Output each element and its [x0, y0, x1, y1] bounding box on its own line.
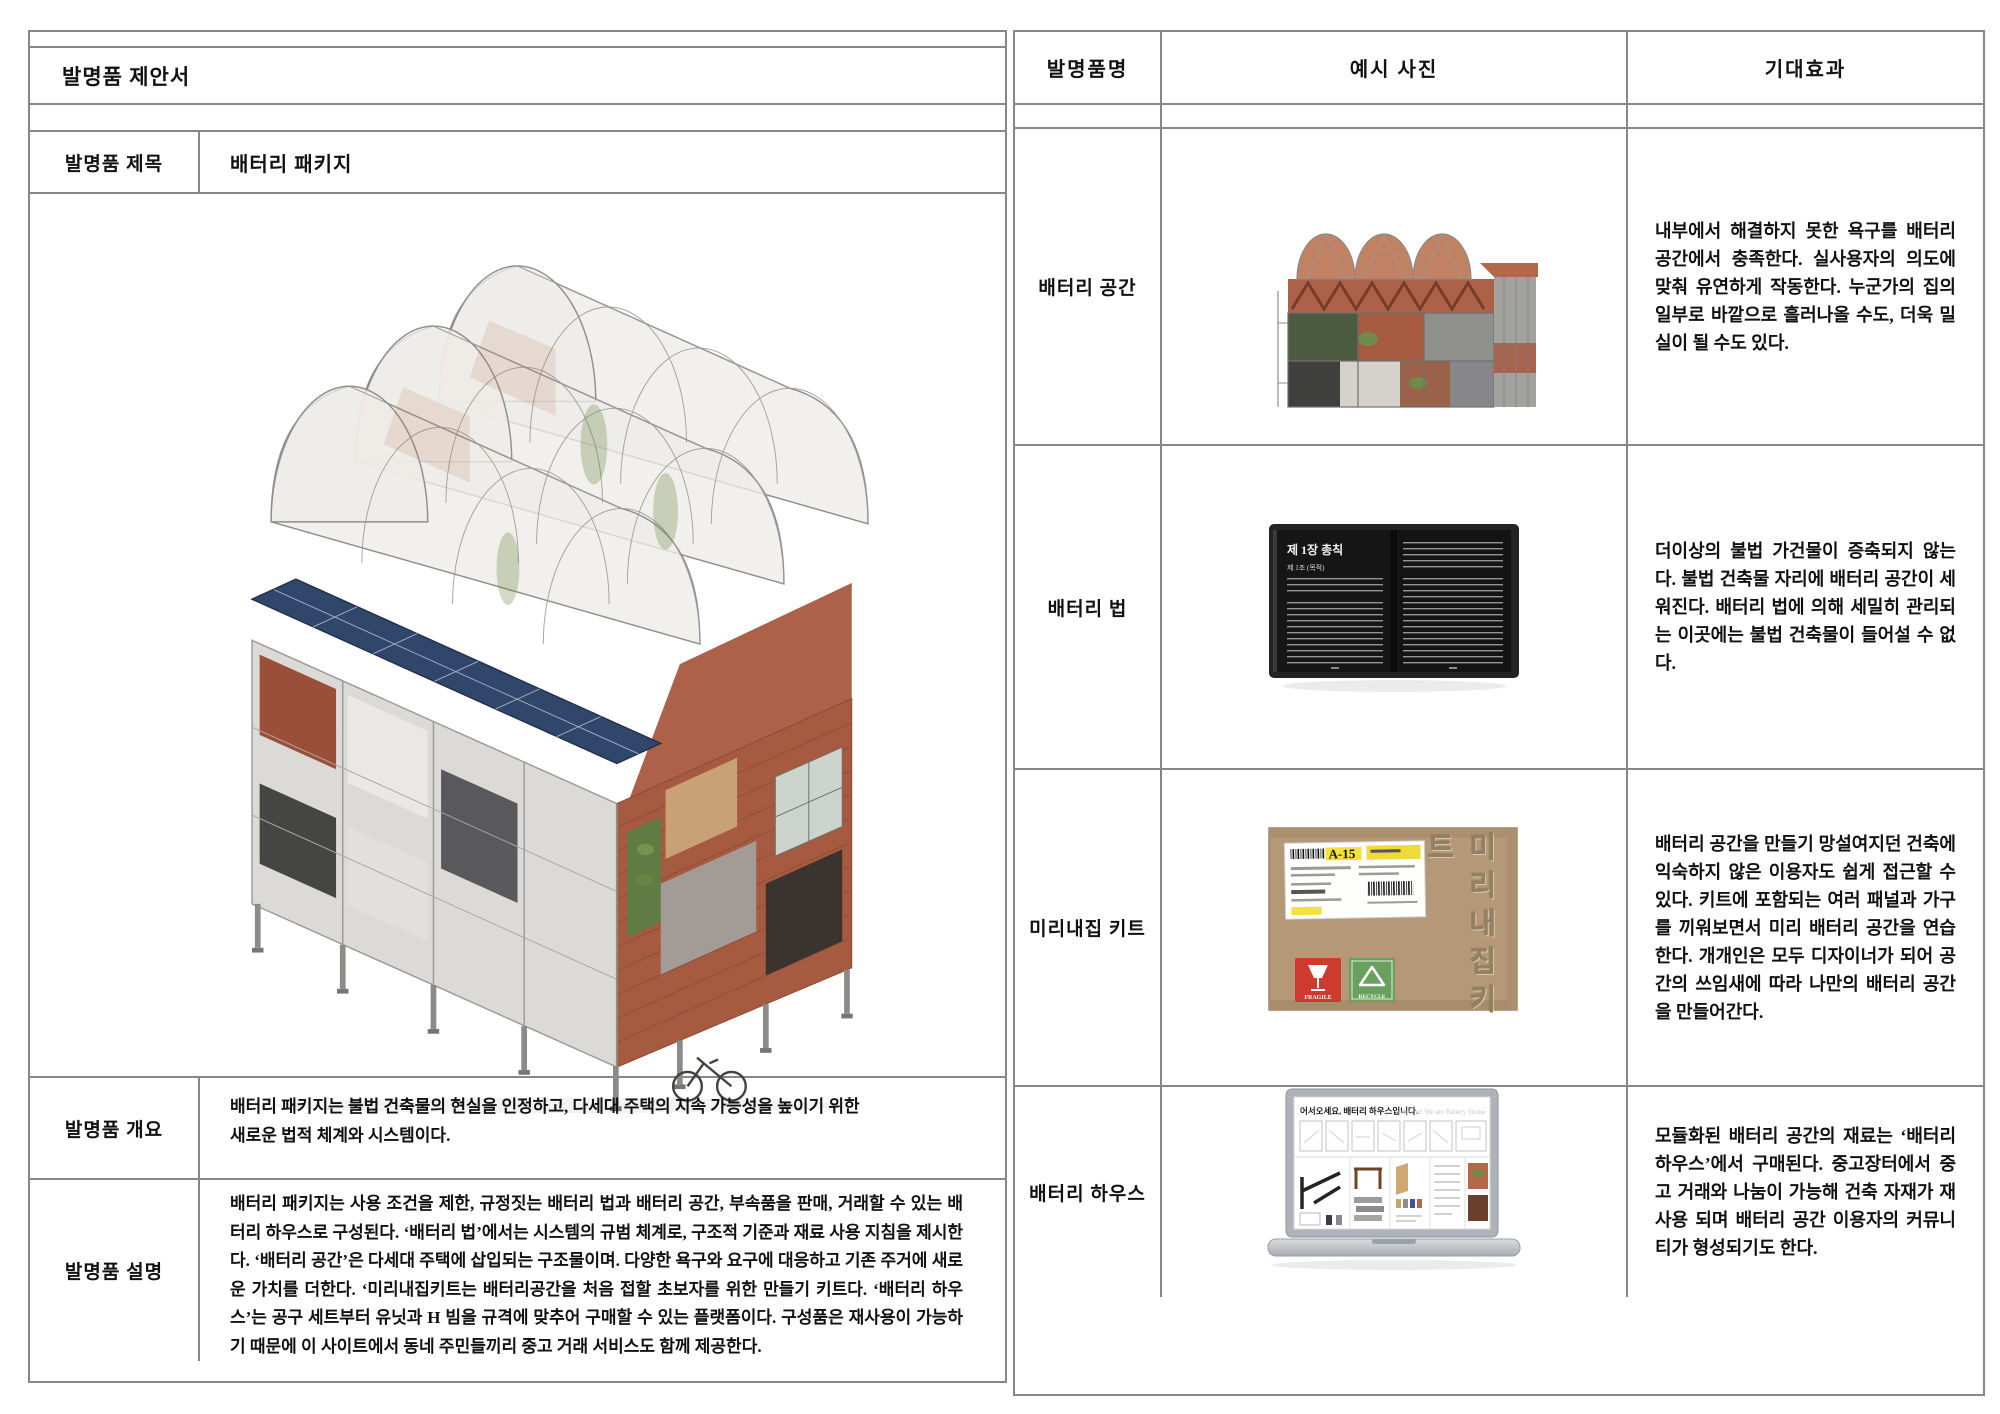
description-text: 배터리 패키지는 사용 조건을 제한, 규정짓는 배터리 법과 배터리 공간, … [200, 1180, 1005, 1361]
recycle-icon: RECYCLE [1349, 958, 1395, 1002]
description-label: 발명품 설명 [30, 1180, 200, 1361]
header-effect: 기대효과 [1628, 32, 1983, 103]
item-photo-cell [1162, 129, 1628, 444]
kit-vertical-title: 미리내집키트 [1417, 832, 1501, 1022]
item-effect-cell: 모듈화된 배터리 공간의 재료는 ‘배터리 하우스’에서 구매된다. 중고장터에… [1628, 1087, 1983, 1297]
effect-text: 배터리 공간을 만들기 망설여지던 건축에 익숙하지 않은 이용자도 쉽게 접근… [1628, 830, 1983, 1026]
overview-label: 발명품 개요 [30, 1078, 200, 1178]
effect-text: 내부에서 해결하지 못한 욕구를 배터리 공간에서 충족한다. 실사용자의 의도… [1628, 217, 1983, 357]
item-name: 배터리 하우스 [1015, 1087, 1162, 1297]
item-name: 배터리 법 [1015, 446, 1162, 768]
item-photo-cell: 제 1장 총칙 제 1조 (목적) [1162, 446, 1628, 768]
fragile-icon: FRAGILE [1295, 958, 1341, 1002]
table-row-mirinae-kit: 미리내집 키트 [1015, 770, 1983, 1087]
spacer-row [30, 32, 1005, 48]
table-row-battery-space: 배터리 공간 [1015, 129, 1983, 446]
fragile-text: FRAGILE [1304, 995, 1331, 1001]
table-row-battery-house: 배터리 하우스 어서오세요, 배터리 하우스입니다. Welcome! We a… [1015, 1087, 1983, 1297]
item-effect-cell: 내부에서 해결하지 못한 욕구를 배터리 공간에서 충족한다. 실사용자의 의도… [1628, 129, 1983, 444]
spacer-row [30, 105, 1005, 132]
overview-row: 발명품 개요 배터리 패키지는 불법 건축물의 현실을 인정하고, 다세대 주택… [30, 1078, 1005, 1180]
laptop-welcome-en: Welcome! We are Battery House [1394, 1108, 1486, 1116]
item-photo-cell: 어서오세요, 배터리 하우스입니다. Welcome! We are Batte… [1162, 1087, 1628, 1297]
laptop-image: 어서오세요, 배터리 하우스입니다. Welcome! We are Batte… [1254, 1087, 1534, 1297]
invention-proposal-sheet: { "document": { "title": "발명품 제안서" }, "l… [0, 0, 2000, 1414]
overview-line-2: 새로운 법적 체계와 시스템이다. [230, 1121, 963, 1150]
kit-box-image: A-15 [1263, 826, 1525, 1030]
item-name: 배터리 공간 [1015, 129, 1162, 444]
table-row-battery-law: 배터리 법 제 1장 총칙 제 1조 (목적) [1015, 446, 1983, 770]
book-chapter-heading: 제 1장 총칙 [1287, 542, 1343, 557]
spacer-cell [1162, 105, 1628, 127]
spacer-cell [1628, 105, 1983, 127]
spacer-cell [1015, 105, 1162, 127]
item-photo-cell: A-15 [1162, 770, 1628, 1085]
page-title: 발명품 제안서 [30, 61, 190, 91]
building-elevation-image [1248, 163, 1540, 411]
law-book-image: 제 1장 총칙 제 1조 (목적) [1263, 516, 1525, 698]
proposal-table: 발명품 제안서 발명품 제목 배터리 패키지 [28, 30, 1007, 1383]
header-name: 발명품명 [1015, 32, 1162, 103]
item-name: 미리내집 키트 [1015, 770, 1162, 1085]
invention-items-table: 발명품명 예시 사진 기대효과 배터리 공간 [1013, 30, 1985, 1396]
description-row: 발명품 설명 배터리 패키지는 사용 조건을 제한, 규정짓는 배터리 법과 배… [30, 1180, 1005, 1361]
item-effect-cell: 배터리 공간을 만들기 망설여지던 건축에 익숙하지 않은 이용자도 쉽게 접근… [1628, 770, 1983, 1085]
item-effect-cell: 더이상의 불법 가건물이 증축되지 않는다. 불법 건축물 자리에 배터리 공간… [1628, 446, 1983, 768]
header-photo: 예시 사진 [1162, 32, 1628, 103]
effect-text: 더이상의 불법 가건물이 증축되지 않는다. 불법 건축물 자리에 배터리 공간… [1628, 537, 1983, 677]
recycle-text: RECYCLE [1359, 994, 1386, 1000]
book-article-heading: 제 1조 (목적) [1287, 563, 1325, 572]
effect-text: 모듈화된 배터리 공간의 재료는 ‘배터리 하우스’에서 구매된다. 중고장터에… [1628, 1122, 1983, 1262]
main-image-row [30, 194, 1005, 1078]
spacer-row [1015, 105, 1983, 129]
header-row: 발명품명 예시 사진 기대효과 [1015, 32, 1983, 105]
building-rendering-image [145, 158, 890, 1113]
kit-label-code: A-15 [1328, 845, 1355, 860]
proposal-title-row: 발명품 제안서 [30, 48, 1005, 105]
overview-line-1: 배터리 패키지는 불법 건축물의 현실을 인정하고, 다세대 주택의 지속 가능… [230, 1092, 963, 1121]
overview-text: 배터리 패키지는 불법 건축물의 현실을 인정하고, 다세대 주택의 지속 가능… [200, 1078, 1005, 1178]
